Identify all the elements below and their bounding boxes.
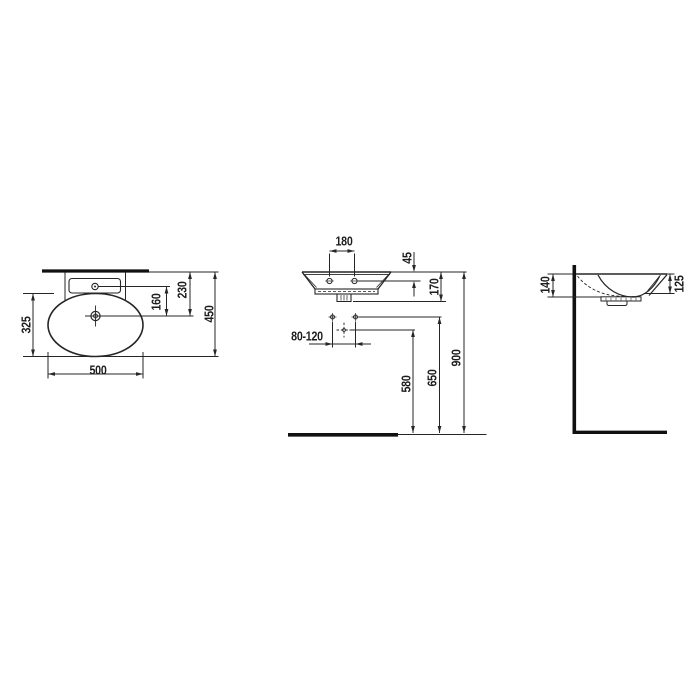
dim-label-fixing-hole-spacing: 180 [335,235,352,248]
front-view-arrows [326,249,466,433]
dim-label-basin-width: 500 [89,364,106,377]
dim-label-drain-outlet-height: 580 [399,375,412,392]
tap-hole-icon [92,283,98,289]
dim-label-rim-height: 900 [449,349,462,366]
dim-label-supply-offset-range: 80-120 [291,330,323,343]
dim-label-faucet-to-drain: 160 [150,293,163,310]
dim-label-rim-to-fixing-holes: 45 [400,252,413,263]
dim-label-rim-to-outlet: 170 [428,278,441,295]
dim-label-wall-to-drain: 230 [176,281,189,298]
waste-outlet-icon [337,323,352,338]
dim-label-height-at-front-edge: 125 [672,275,685,292]
basin-side-profile [576,274,667,306]
dim-label-supply-height: 650 [425,369,438,386]
water-supply-icon [329,313,360,321]
technical-drawing-page: 500 325 450 230 160 180 45 170 80-120 58… [0,0,700,700]
side-view [548,265,675,434]
side-waste-fitting [607,301,627,306]
basin-front-outline [302,272,391,302]
drawing-geometry [0,0,700,700]
dim-label-height-at-wall: 140 [538,276,551,293]
fixing-hole-icon [325,278,358,283]
dim-label-overall-depth: 450 [202,305,215,322]
dim-label-basin-depth: 325 [20,316,33,333]
